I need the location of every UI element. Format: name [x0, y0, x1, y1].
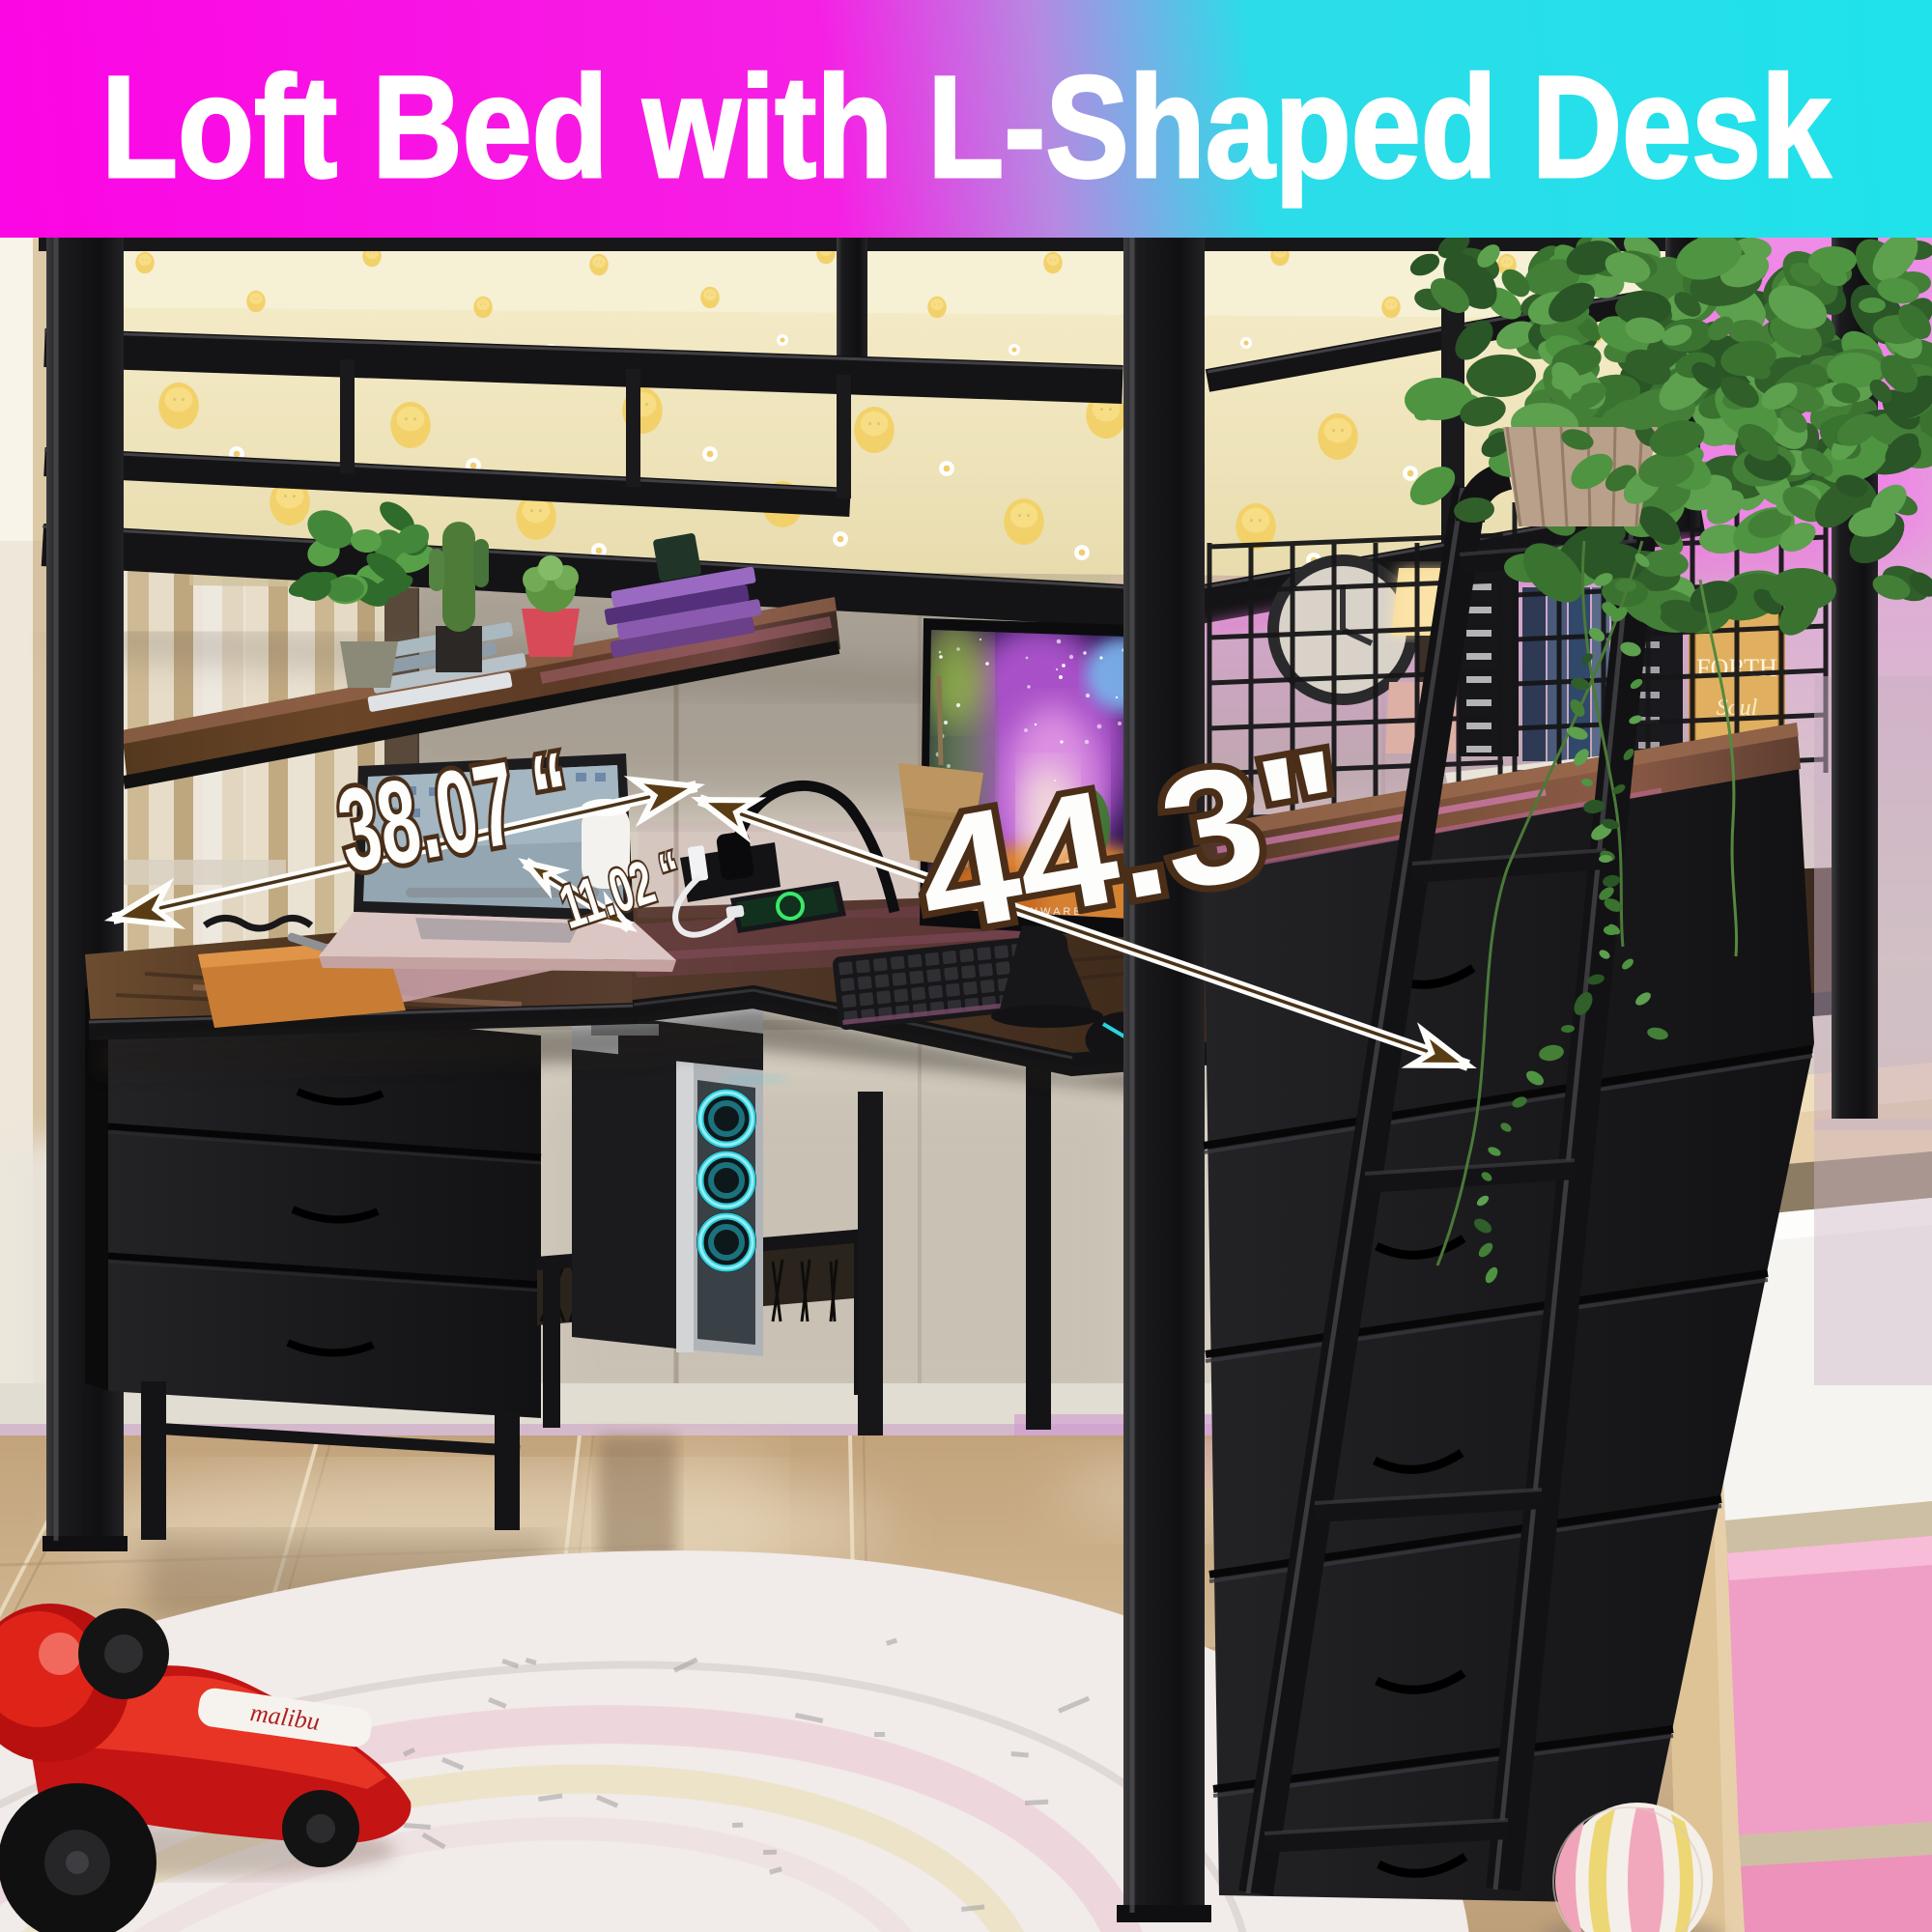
svg-text:Loft Bed with L-Shaped Desk: Loft Bed with L-Shaped Desk — [101, 45, 1831, 208]
